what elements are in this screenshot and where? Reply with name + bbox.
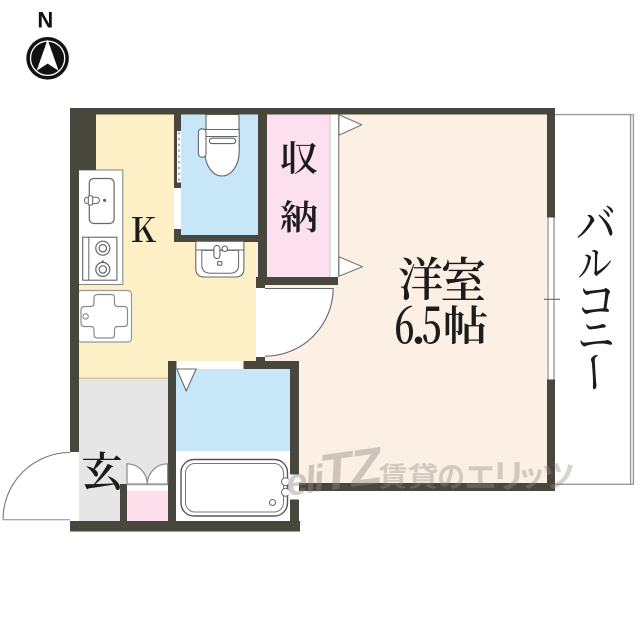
svg-text:N: N: [37, 8, 53, 33]
